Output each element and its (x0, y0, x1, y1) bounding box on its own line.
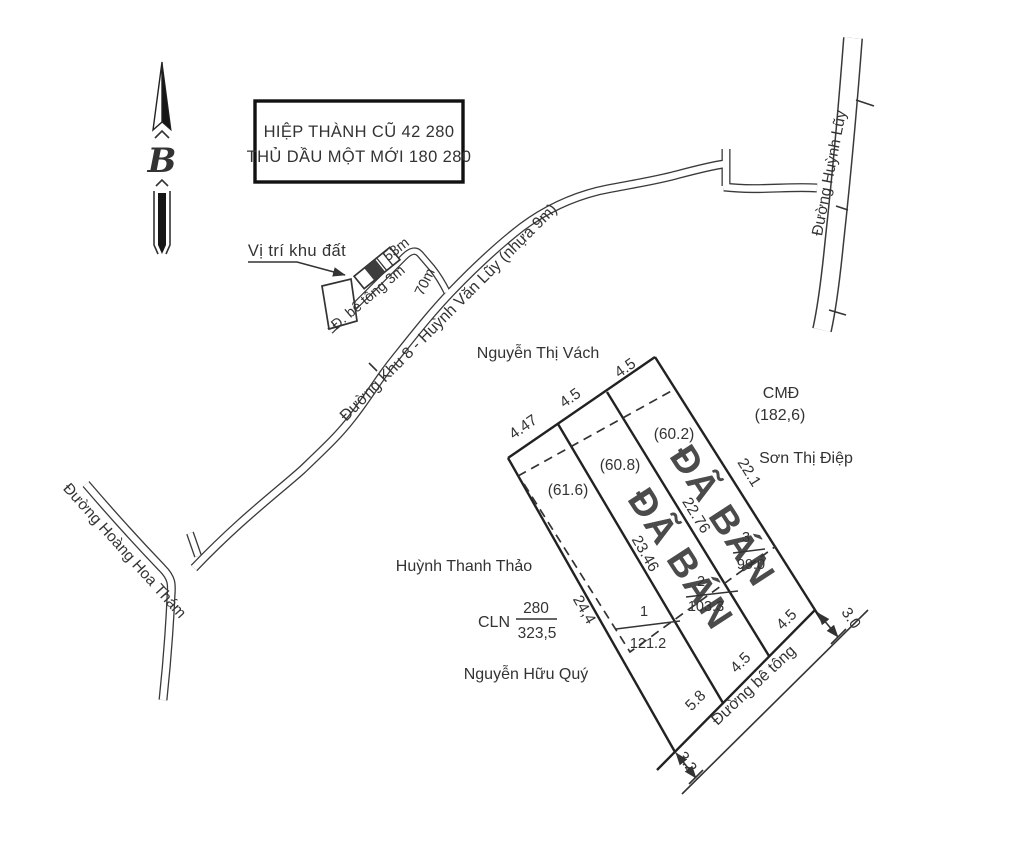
lot-1-area-paren: (61.6) (548, 482, 589, 499)
bottom-dim-2: 4.5 (727, 649, 754, 676)
title-line-1: HIỆP THÀNH CŨ 42 280 (264, 121, 455, 141)
neighbor-east-label: Sơn Thị Điệp (759, 450, 853, 467)
cln-label: CLN (478, 614, 510, 631)
bottom-road-label: Đường bê tông (708, 643, 799, 729)
lot-2-area-paren: (60.8) (600, 457, 641, 474)
cln-denominator: 323,5 (518, 625, 557, 642)
north-arrow-icon: B (147, 62, 177, 254)
road-fills (86, 38, 853, 700)
road-casings (86, 38, 853, 700)
bottom-road-far-edge (682, 610, 868, 794)
lot-3-area-paren: (60.2) (654, 426, 695, 443)
left-edge-dim: 24,4 (569, 592, 599, 627)
callout-leader-arrow (248, 262, 345, 275)
main-road-label: Đường Khu 8 - Huỳnh Văn Lũy (nhựa 9m) (337, 201, 561, 425)
neighbor-west-label: Huỳnh Thanh Thảo (396, 558, 533, 575)
bottom-dim-1: 5.8 (682, 687, 709, 714)
lot-1-number: 1 (640, 604, 648, 620)
cadastral-sketch-map: B HIỆP THÀNH CŨ 42 280 THỦ DẦU MỘT MỚI 1… (0, 0, 1024, 847)
lot-1-area: 121.2 (630, 636, 666, 652)
left-road-label: Đường Hoàng Hoa Thám (59, 480, 189, 622)
top-dim-3: 4.5 (612, 355, 639, 381)
title-line-2: THỦ DẦU MỘT MỚI 180 280 (247, 147, 472, 166)
road-width-arrow-east (818, 613, 838, 637)
cmd-label: CMĐ (763, 385, 799, 402)
lot-1-fraction: 1 121.2 (616, 604, 680, 652)
north-letter: B (147, 141, 177, 181)
neighbor-north-label: Nguyễn Thị Vách (477, 343, 599, 362)
road-width-south-label: 3.2 (674, 749, 700, 776)
cmd-value: (182,6) (755, 407, 806, 424)
cln-numerator: 280 (523, 600, 549, 617)
cln-fraction: CLN 280 323,5 (478, 600, 557, 642)
site-callout-label: Vị trí khu đất (248, 242, 346, 260)
map-svg: B HIỆP THÀNH CŨ 42 280 THỦ DẦU MỘT MỚI 1… (0, 0, 1024, 847)
road-width-east-label: 3.0 (838, 605, 865, 633)
title-box: HIỆP THÀNH CŨ 42 280 THỦ DẦU MỘT MỚI 180… (247, 101, 472, 182)
neighbor-south-label: Nguyễn Hữu Quý (464, 664, 589, 683)
